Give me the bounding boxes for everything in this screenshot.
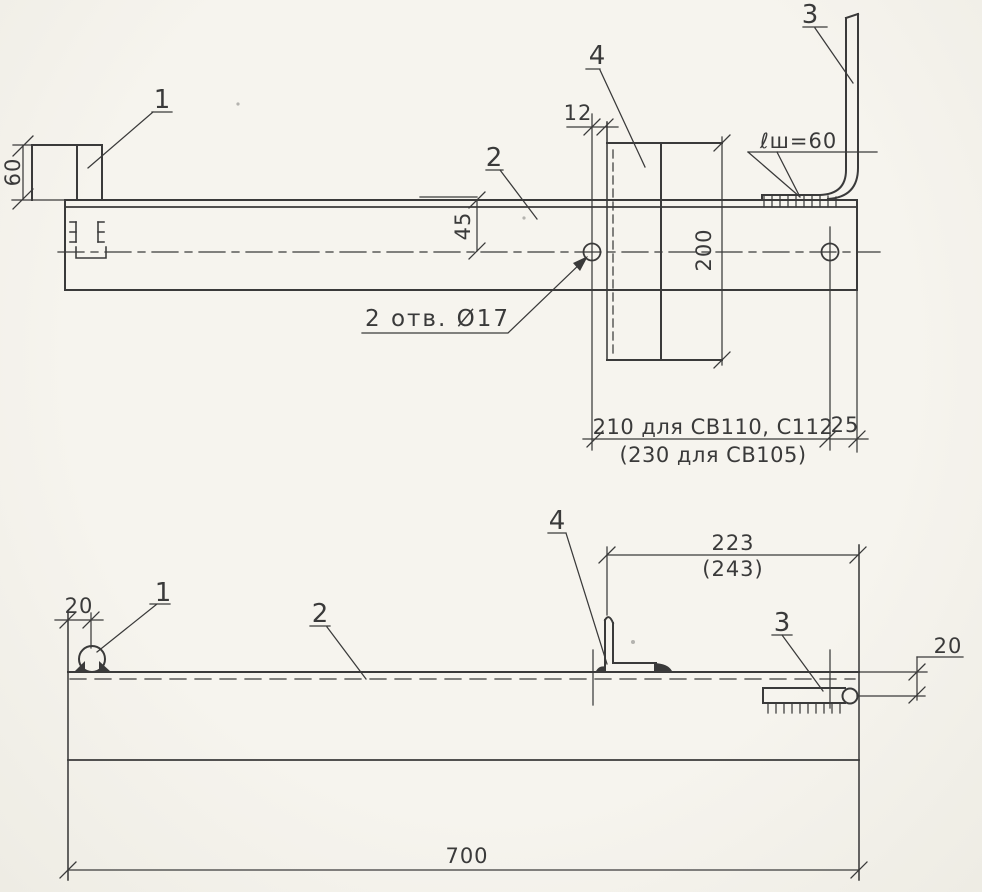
callout-part2-plan-label: 2 [312,599,329,629]
scan-speck [522,216,525,219]
dim-label-223: 223 [711,531,754,555]
front-view: 60 45 12 200 210 для СВ110, С112 (230 дл… [1,0,880,467]
part4-plan [596,617,672,671]
scan-speck [236,102,239,105]
part1-hidden-lines [70,222,106,258]
dim-label-700: 700 [445,844,488,868]
dimension-210-25: 210 для СВ110, С112 (230 для СВ105) 25 [583,290,868,467]
callout-part1-plan: 1 [97,578,171,652]
dim-label-12: 12 [564,101,593,125]
holes-note-label: 2 отв. Ø17 [365,306,510,332]
callout-part1-front: 1 [88,85,172,168]
dimension-700: 700 [60,844,867,878]
dim-label-45: 45 [451,212,475,241]
callout-part4-front: 4 [586,41,645,167]
weld-seam-hatch-plan [768,703,840,713]
dim-label-243: (243) [702,557,763,581]
part3-plan [763,688,858,713]
callout-part3-front-label: 3 [802,0,819,30]
callout-part4-plan-label: 4 [549,506,566,536]
drawing-canvas: 60 45 12 200 210 для СВ110, С112 (230 дл… [0,0,982,892]
dim-label-200: 200 [692,228,716,271]
dim-label-210: 210 для СВ110, С112 [593,415,834,439]
dimension-45: 45 [420,192,485,259]
dimension-20-right: 20 [857,634,963,703]
dim-label-230: (230 для СВ105) [619,443,806,467]
dim-label-25: 25 [831,413,860,437]
beam-outline-plan [68,545,859,880]
part3-hook-front [762,14,858,207]
dimension-60: 60 [1,136,70,209]
callout-part2-plan: 2 [310,599,366,679]
callout-part1-front-label: 1 [154,85,171,115]
plan-view: 20 223 (243) 20 700 1 [55,506,963,880]
callout-part4-front-label: 4 [589,41,606,71]
dimension-12: 12 [564,101,618,135]
callout-part2-front-label: 2 [486,143,503,173]
part1-plan [74,613,111,672]
dim-label-20-right: 20 [934,634,963,658]
dimension-20-left: 20 [55,594,103,628]
dimension-223: 223 (243) [599,531,866,615]
weld-note-label: ℓш=60 [759,129,837,153]
callout-part4-plan: 4 [548,506,607,664]
callout-part3-plan-label: 3 [774,608,791,638]
scanned-technical-drawing: 60 45 12 200 210 для СВ110, С112 (230 дл… [0,0,982,892]
holes-note: 2 отв. Ø17 [362,256,588,333]
dim-label-20-left: 20 [65,594,94,618]
scan-speck [631,640,635,644]
dim-label-60: 60 [1,158,25,187]
hole-left [584,114,601,450]
